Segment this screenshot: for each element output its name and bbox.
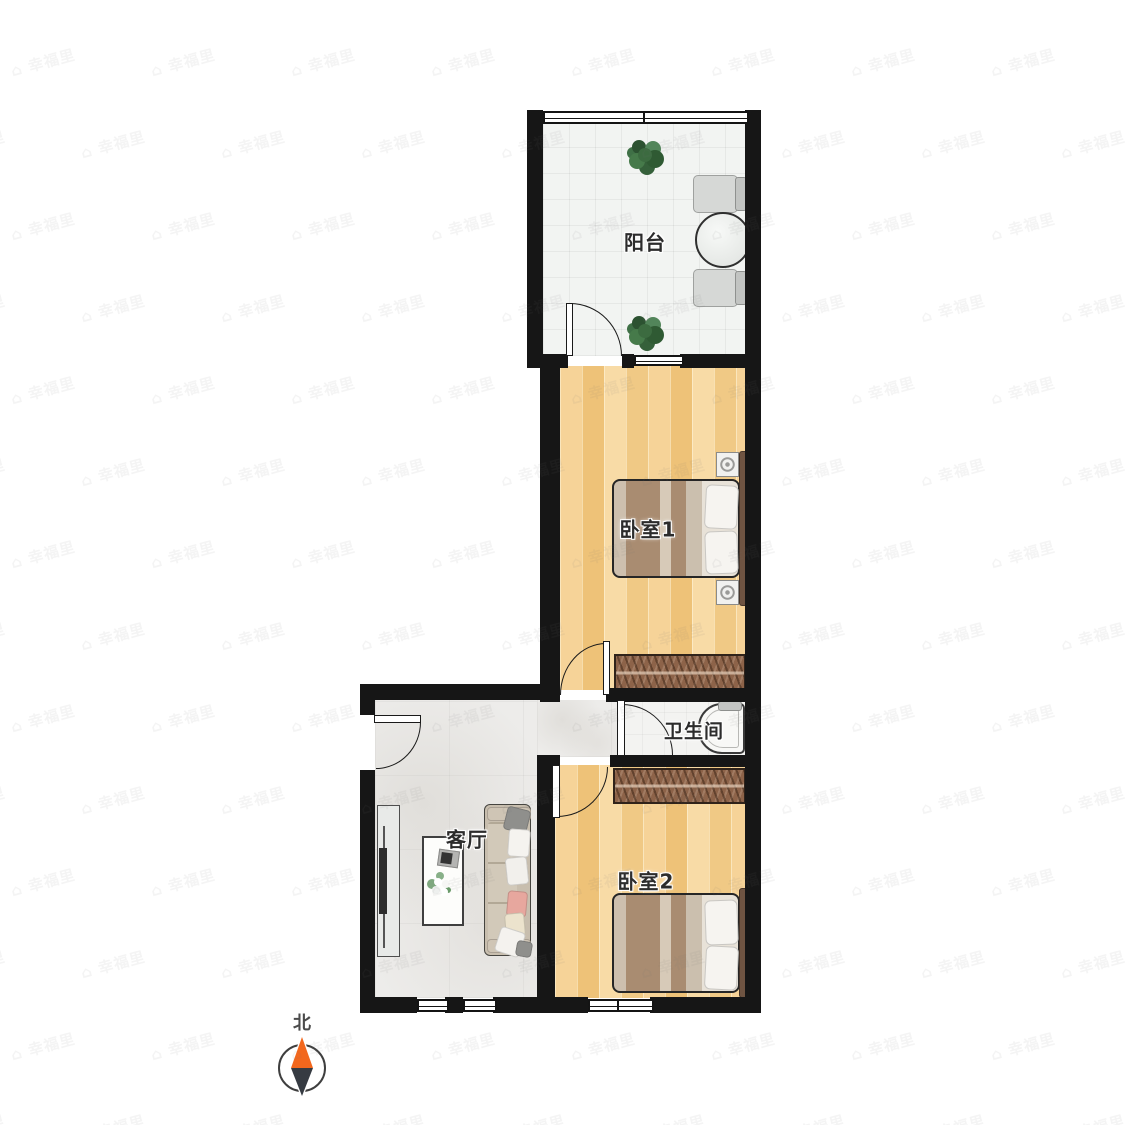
- tv-icon: [379, 848, 387, 914]
- watermark-text: ⌂ 幸福里: [848, 536, 917, 573]
- wall: [650, 997, 761, 1013]
- watermark-text: ⌂ 幸福里: [918, 946, 987, 983]
- wall: [540, 354, 560, 702]
- watermark-text: ⌂ 幸福里: [778, 454, 847, 491]
- wall: [360, 997, 417, 1013]
- living-room-window: [417, 999, 449, 1012]
- compass-needle-north-icon: [291, 1037, 313, 1068]
- watermark-text: ⌂ 幸福里: [918, 454, 987, 491]
- watermark-text: ⌂ 幸福里: [1058, 946, 1125, 983]
- watermark-text: ⌂ 幸福里: [8, 44, 77, 81]
- watermark-text: ⌂ 幸福里: [428, 536, 497, 573]
- watermark-text: ⌂ 幸福里: [8, 864, 77, 901]
- watermark-text: ⌂ 幸福里: [1058, 126, 1125, 163]
- watermark-text: ⌂ 幸福里: [288, 536, 357, 573]
- living-room-window: [463, 999, 497, 1012]
- compass-north-label: 北: [293, 1009, 311, 1035]
- watermark-text: ⌂ 幸福里: [218, 454, 287, 491]
- watermark-text: ⌂ 幸福里: [148, 372, 217, 409]
- floor-plan: 阳台 卧室1 卫生间 客厅 卧室2 北 ⌂ 幸福里⌂ 幸福里⌂ 幸福里⌂ 幸福里…: [0, 0, 1125, 1125]
- sofa: [484, 804, 531, 956]
- watermark-text: ⌂ 幸福里: [778, 1110, 847, 1125]
- watermark-text: ⌂ 幸福里: [78, 454, 147, 491]
- room-label-balcony: 阳台: [624, 227, 666, 256]
- wall: [360, 770, 375, 1013]
- balcony-window: [543, 111, 749, 124]
- watermark-text: ⌂ 幸福里: [1058, 290, 1125, 327]
- window-mullion: [643, 112, 645, 123]
- watermark-text: ⌂ 幸福里: [358, 1110, 427, 1125]
- bedroom2-wardrobe: [613, 768, 746, 804]
- compass-needle-south-icon: [291, 1068, 313, 1096]
- watermark-text: ⌂ 幸福里: [848, 44, 917, 81]
- balcony-chair: [693, 175, 738, 213]
- watermark-text: ⌂ 幸福里: [778, 618, 847, 655]
- watermark-text: ⌂ 幸福里: [0, 946, 8, 983]
- watermark-text: ⌂ 幸福里: [8, 536, 77, 573]
- watermark-text: ⌂ 幸福里: [1058, 782, 1125, 819]
- watermark-text: ⌂ 幸福里: [1058, 454, 1125, 491]
- watermark-text: ⌂ 幸福里: [988, 208, 1057, 245]
- watermark-text: ⌂ 幸福里: [0, 126, 8, 163]
- watermark-text: ⌂ 幸福里: [358, 618, 427, 655]
- watermark-text: ⌂ 幸福里: [988, 44, 1057, 81]
- potted-plant-icon: [638, 324, 652, 338]
- watermark-text: ⌂ 幸福里: [148, 864, 217, 901]
- watermark-text: ⌂ 幸福里: [988, 1028, 1057, 1065]
- watermark-text: ⌂ 幸福里: [218, 1110, 287, 1125]
- watermark-text: ⌂ 幸福里: [918, 290, 987, 327]
- watermark-text: ⌂ 幸福里: [568, 44, 637, 81]
- watermark-text: ⌂ 幸福里: [78, 782, 147, 819]
- watermark-text: ⌂ 幸福里: [148, 536, 217, 573]
- nightstand: [716, 452, 739, 477]
- watermark-text: ⌂ 幸福里: [358, 126, 427, 163]
- potted-plant-icon: [638, 148, 652, 162]
- watermark-text: ⌂ 幸福里: [428, 372, 497, 409]
- bedroom2-window: [588, 999, 654, 1012]
- watermark-text: ⌂ 幸福里: [778, 782, 847, 819]
- watermark-text: ⌂ 幸福里: [848, 1028, 917, 1065]
- watermark-text: ⌂ 幸福里: [78, 126, 147, 163]
- wall: [527, 110, 543, 368]
- room-label-bathroom: 卫生间: [664, 717, 724, 744]
- room-label-bedroom2: 卧室2: [618, 866, 675, 895]
- room-label-living: 客厅: [446, 824, 488, 853]
- watermark-text: ⌂ 幸福里: [78, 946, 147, 983]
- watermark-text: ⌂ 幸福里: [8, 208, 77, 245]
- bedroom2-door: [552, 765, 560, 818]
- watermark-text: ⌂ 幸福里: [218, 946, 287, 983]
- bedroom2-bed: [612, 893, 740, 993]
- watermark-text: ⌂ 幸福里: [0, 290, 8, 327]
- watermark-text: ⌂ 幸福里: [288, 208, 357, 245]
- watermark-text: ⌂ 幸福里: [8, 1028, 77, 1065]
- bedroom1-wardrobe: [614, 654, 746, 692]
- watermark-text: ⌂ 幸福里: [708, 44, 777, 81]
- watermark-text: ⌂ 幸福里: [918, 618, 987, 655]
- watermark-text: ⌂ 幸福里: [0, 782, 8, 819]
- wall: [606, 688, 745, 702]
- watermark-text: ⌂ 幸福里: [148, 208, 217, 245]
- watermark-text: ⌂ 幸福里: [148, 700, 217, 737]
- watermark-text: ⌂ 幸福里: [778, 290, 847, 327]
- watermark-text: ⌂ 幸福里: [358, 290, 427, 327]
- wall: [680, 354, 745, 368]
- wall: [745, 110, 761, 1013]
- watermark-text: ⌂ 幸福里: [498, 1110, 567, 1125]
- watermark-text: ⌂ 幸福里: [78, 290, 147, 327]
- wall: [610, 755, 745, 767]
- watermark-text: ⌂ 幸福里: [288, 864, 357, 901]
- watermark-text: ⌂ 幸福里: [988, 700, 1057, 737]
- wall: [360, 684, 375, 715]
- watermark-text: ⌂ 幸福里: [8, 372, 77, 409]
- watermark-text: ⌂ 幸福里: [778, 946, 847, 983]
- watermark-text: ⌂ 幸福里: [568, 1028, 637, 1065]
- bathroom-door: [617, 700, 625, 756]
- wall: [622, 354, 634, 368]
- watermark-text: ⌂ 幸福里: [1058, 618, 1125, 655]
- watermark-text: ⌂ 幸福里: [358, 454, 427, 491]
- watermark-text: ⌂ 幸福里: [148, 44, 217, 81]
- watermark-text: ⌂ 幸福里: [428, 208, 497, 245]
- watermark-text: ⌂ 幸福里: [638, 1110, 707, 1125]
- watermark-text: ⌂ 幸福里: [428, 1028, 497, 1065]
- watermark-text: ⌂ 幸福里: [848, 864, 917, 901]
- watermark-text: ⌂ 幸福里: [0, 618, 8, 655]
- watermark-text: ⌂ 幸福里: [218, 782, 287, 819]
- watermark-text: ⌂ 幸福里: [428, 44, 497, 81]
- watermark-text: ⌂ 幸福里: [848, 372, 917, 409]
- balcony-round-table: [695, 212, 751, 268]
- nightstand: [716, 580, 739, 605]
- watermark-text: ⌂ 幸福里: [1058, 1110, 1125, 1125]
- watermark-text: ⌂ 幸福里: [218, 290, 287, 327]
- balcony-chair: [693, 269, 738, 307]
- watermark-text: ⌂ 幸福里: [918, 1110, 987, 1125]
- watermark-text: ⌂ 幸福里: [288, 44, 357, 81]
- entrance-door: [374, 715, 421, 723]
- watermark-text: ⌂ 幸福里: [218, 618, 287, 655]
- balcony-door: [566, 303, 573, 356]
- flower-vase-icon: [434, 878, 442, 886]
- wall: [360, 684, 540, 700]
- watermark-text: ⌂ 幸福里: [918, 126, 987, 163]
- hallway-floor: [537, 700, 622, 757]
- watermark-text: ⌂ 幸福里: [0, 1110, 8, 1125]
- watermark-text: ⌂ 幸福里: [988, 864, 1057, 901]
- watermark-text: ⌂ 幸福里: [8, 700, 77, 737]
- watermark-text: ⌂ 幸福里: [848, 208, 917, 245]
- watermark-text: ⌂ 幸福里: [988, 536, 1057, 573]
- bathtub-faucet-icon: [718, 701, 742, 711]
- watermark-text: ⌂ 幸福里: [848, 700, 917, 737]
- window-mullion: [617, 1000, 619, 1011]
- watermark-text: ⌂ 幸福里: [918, 782, 987, 819]
- watermark-text: ⌂ 幸福里: [148, 1028, 217, 1065]
- watermark-text: ⌂ 幸福里: [78, 1110, 147, 1125]
- watermark-text: ⌂ 幸福里: [778, 126, 847, 163]
- watermark-text: ⌂ 幸福里: [988, 372, 1057, 409]
- balcony-bedroom1-window: [634, 355, 684, 366]
- watermark-text: ⌂ 幸福里: [218, 126, 287, 163]
- bedroom1-door: [603, 641, 610, 695]
- watermark-text: ⌂ 幸福里: [708, 1028, 777, 1065]
- watermark-text: ⌂ 幸福里: [78, 618, 147, 655]
- watermark-text: ⌂ 幸福里: [288, 700, 357, 737]
- watermark-text: ⌂ 幸福里: [288, 372, 357, 409]
- watermark-text: ⌂ 幸福里: [0, 454, 8, 491]
- room-label-bedroom1: 卧室1: [620, 514, 677, 543]
